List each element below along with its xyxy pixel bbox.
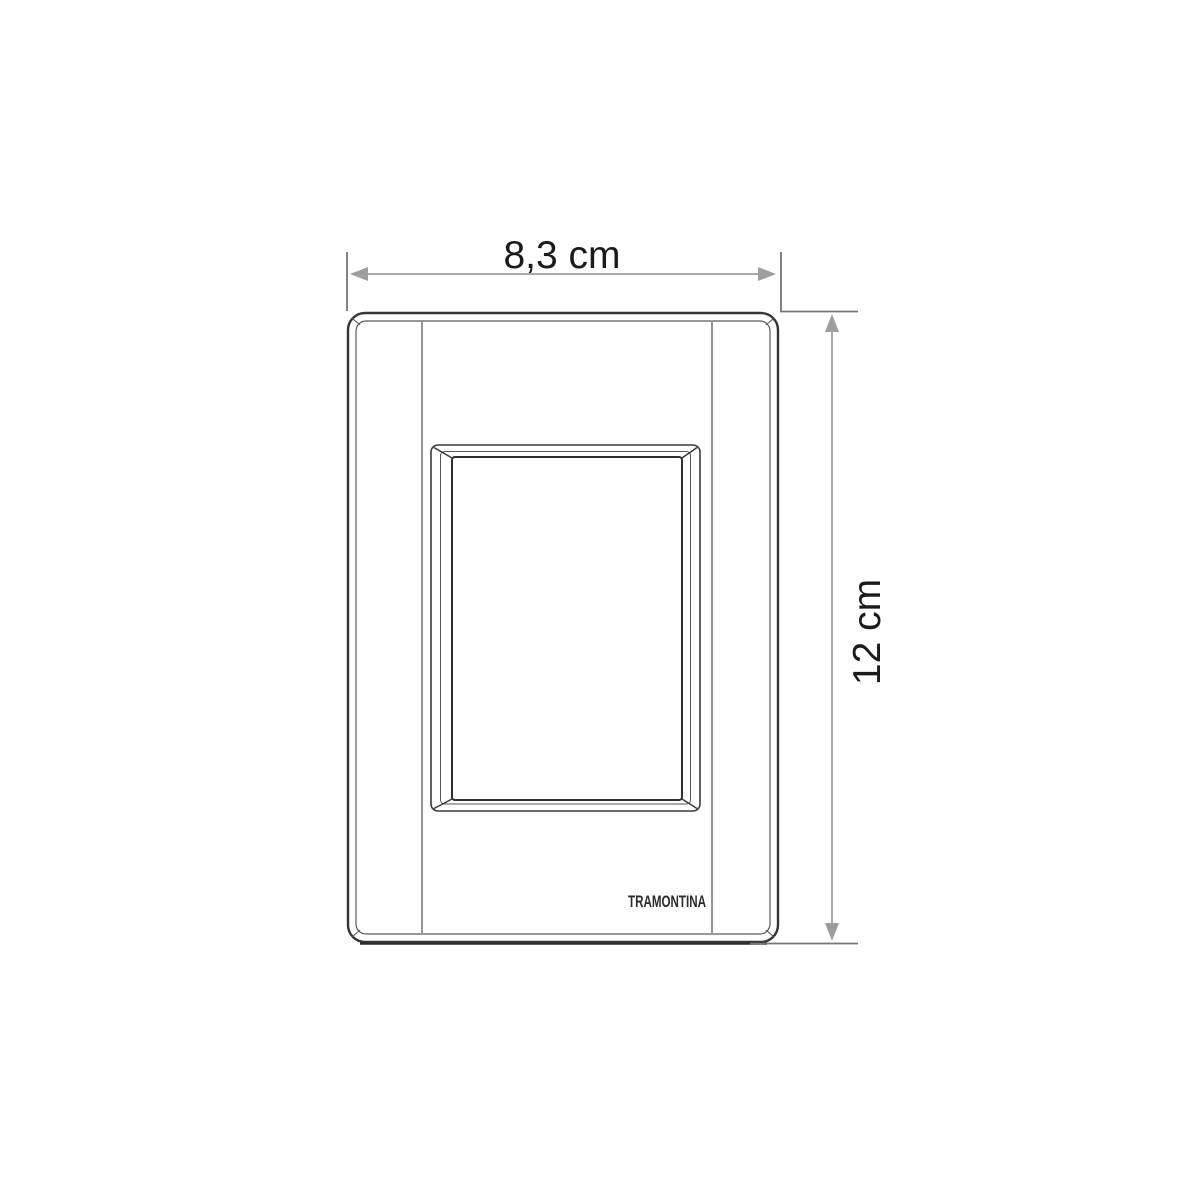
brand-label: TRAMONTINA: [628, 892, 706, 911]
arrow-left-icon: [350, 267, 368, 281]
width-dimension: 8,3 cm: [347, 234, 781, 311]
plate-center-opening: [431, 445, 700, 811]
arrow-up-icon: [825, 314, 839, 332]
arrow-down-icon: [825, 923, 839, 941]
wall-plate: TRAMONTINA: [348, 313, 778, 944]
wall-plate-dimension-diagram: TRAMONTINA 8,3 cm 12 cm: [0, 0, 1200, 1200]
width-dimension-label: 8,3 cm: [503, 234, 620, 277]
arrow-right-icon: [758, 267, 776, 281]
opening-rim: [452, 457, 682, 800]
dimension-drawing-canvas: TRAMONTINA 8,3 cm 12 cm: [0, 0, 1200, 1200]
height-dimension-label: 12 cm: [846, 579, 889, 685]
